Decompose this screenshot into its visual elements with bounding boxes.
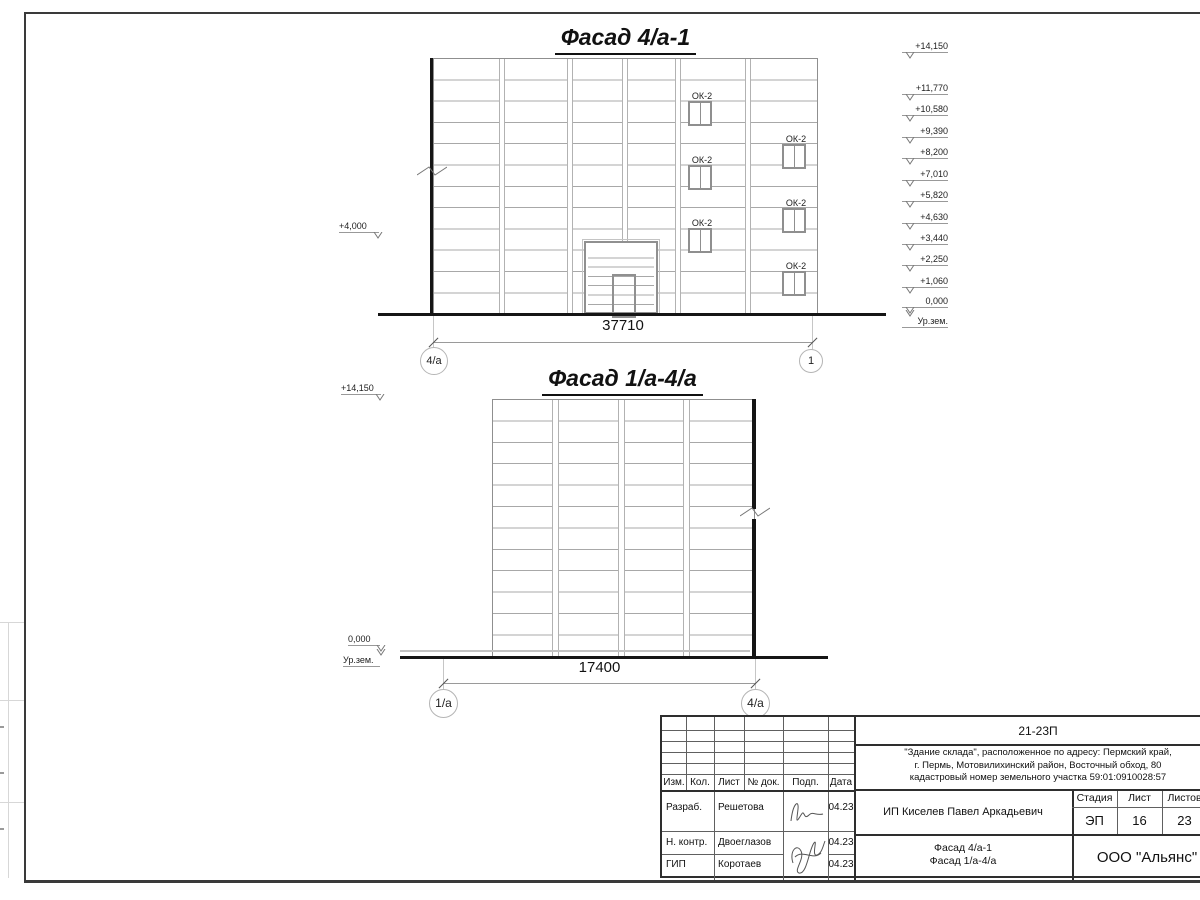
tb-role: Разраб. (666, 799, 714, 815)
tb-name: Двоеглазов (718, 834, 782, 850)
window-label: ОК-2 (684, 218, 720, 228)
window-ok2: ОК-2 (688, 101, 712, 126)
elevation-mark: 0,000 (902, 296, 948, 308)
facade1-building: ОК-2ОК-2ОК-2ОК-2ОК-2ОК-2 (433, 58, 818, 315)
column-line (499, 59, 505, 314)
tb-date: 04.23 (828, 799, 854, 815)
tb-name: Решетова (718, 799, 782, 815)
gate-door (584, 241, 658, 314)
window-ok2: ОК-2 (782, 271, 806, 296)
elevation-mark: +2,250 (902, 254, 948, 266)
elevation-mark-icon (905, 94, 915, 101)
axis-bubble: 1/а (429, 689, 458, 718)
tb-company: ООО "Альянс" (1072, 834, 1200, 880)
window-ok2: ОК-2 (688, 228, 712, 253)
column-line (567, 59, 573, 314)
elevation-mark: +4,000 (339, 221, 379, 233)
facade1-ground-line (378, 313, 886, 316)
elevation-mark-icon (905, 52, 915, 59)
elevation-mark: +14,150 (341, 383, 381, 395)
window-label: ОК-2 (684, 155, 720, 165)
tb-date: 04.23 (828, 834, 854, 850)
tb-line (662, 763, 854, 764)
elevation-label: Ур.зем. (902, 316, 948, 328)
break-line-icon (417, 164, 447, 178)
elevation-mark-icon (905, 223, 915, 230)
elevation-mark-icon (905, 180, 915, 187)
elevation-mark-icon (905, 201, 915, 208)
tb-role: Н. контр. (666, 834, 714, 850)
tb-col-header: Лист (714, 774, 744, 790)
facade1-dimension: 37710 (433, 317, 813, 334)
tb-doc-number: 21-23П (854, 717, 1200, 744)
tb-col-header: № док. (744, 774, 783, 790)
tb-line (662, 854, 783, 855)
window-label: ОК-2 (778, 134, 814, 144)
ground-label: Ур.зем. (343, 655, 380, 667)
tb-col-header: Дата (828, 774, 854, 790)
window-pane-divider (700, 167, 701, 188)
window-ok2: ОК-2 (782, 144, 806, 169)
signature-icon (783, 791, 828, 879)
elevation-mark: +1,060 (902, 276, 948, 288)
facade2-dimension: 17400 (443, 659, 756, 676)
tb-col-header: Кол. (686, 774, 714, 790)
elevation-mark: +4,630 (902, 212, 948, 224)
wicket-door (612, 274, 636, 318)
facade2-title: Фасад 1/а-4/а (492, 365, 753, 396)
tb-sheet-value: 16 (1117, 807, 1162, 834)
window-label: ОК-2 (778, 261, 814, 271)
tb-client: ИП Киселев Павел Аркадьевич (854, 789, 1072, 834)
elevation-mark-icon (905, 158, 915, 165)
drawing-sheet: { "facade1": { "title": "Фасад 4/а-1", "… (0, 0, 1200, 900)
elevation-mark: +5,820 (902, 190, 948, 202)
tb-name: Коротаев (718, 856, 782, 872)
column-line (675, 59, 681, 314)
elevation-mark: +8,200 (902, 147, 948, 159)
tb-sheets-value: 23 (1162, 807, 1200, 834)
tb-col-header: Подп. (783, 774, 828, 790)
elevation-mark-icon (376, 649, 386, 656)
tb-line (662, 730, 854, 731)
elevation-mark-icon (373, 232, 383, 239)
window-ok2: ОК-2 (782, 208, 806, 233)
elevation-mark-icon (905, 115, 915, 122)
facade2-right-contour (752, 399, 756, 509)
window-pane-divider (700, 103, 701, 124)
tb-line (662, 741, 854, 742)
facade2-right-contour (752, 519, 756, 657)
axis-bubble: 4/а (420, 347, 448, 375)
foundation-line (400, 650, 750, 652)
elevation-mark-icon (905, 244, 915, 251)
elevation-mark-icon (905, 287, 915, 294)
window-pane-divider (700, 230, 701, 251)
axis-bubble: 1 (799, 349, 823, 373)
ground-level-mark: Ур.зем. (343, 655, 380, 667)
axis-bubble: 4/а (741, 689, 770, 718)
dimension-line (433, 342, 813, 343)
elevation-mark: 0,000 (348, 634, 380, 646)
facade1-title: Фасад 4/а-1 (433, 24, 818, 55)
facade2-building (492, 399, 755, 658)
tb-line (828, 854, 854, 855)
tb-content-title: Фасад 4/а-1 Фасад 1/а-4/а (854, 842, 1072, 868)
dimension-line (443, 683, 756, 684)
tb-role: ГИП (666, 856, 714, 872)
elevation-mark-icon (905, 137, 915, 144)
window-pane-divider (794, 273, 795, 294)
window-label: ОК-2 (684, 91, 720, 101)
tb-sheet-header: Лист (1117, 790, 1162, 806)
elevation-mark: +9,390 (902, 126, 948, 138)
elevation-mark: +14,150 (902, 41, 948, 53)
column-strip (618, 400, 625, 657)
tb-sheets-header: Листов (1162, 790, 1200, 806)
column-line (745, 59, 751, 314)
elevation-mark: +10,580 (902, 104, 948, 116)
tb-line (854, 744, 1200, 746)
elevation-mark-icon (905, 265, 915, 272)
tb-project-description: "Здание склада", расположенное по адресу… (858, 747, 1200, 785)
elevation-mark: +7,010 (902, 169, 948, 181)
ground-level-mark: Ур.зем. (902, 316, 948, 328)
tb-date: 04.23 (828, 856, 854, 872)
break-line-icon (740, 505, 770, 519)
window-label: ОК-2 (778, 198, 814, 208)
tb-stage-value: ЭП (1072, 807, 1117, 834)
tb-stage-header: Стадия (1072, 790, 1117, 806)
title-block: Изм. Кол. Лист № док. Подп. Дата Разраб.… (660, 715, 1200, 878)
window-ok2: ОК-2 (688, 165, 712, 190)
elevation-mark-icon (905, 310, 915, 317)
column-strip (683, 400, 690, 657)
facade1-left-contour (430, 58, 433, 315)
elevation-mark: +3,440 (902, 233, 948, 245)
column-strip (552, 400, 559, 657)
tb-col-header: Изм. (662, 774, 686, 790)
window-pane-divider (794, 146, 795, 167)
tb-line (662, 752, 854, 753)
window-pane-divider (794, 210, 795, 231)
elevation-mark-icon (375, 394, 385, 401)
elevation-mark: +11,770 (902, 83, 948, 95)
